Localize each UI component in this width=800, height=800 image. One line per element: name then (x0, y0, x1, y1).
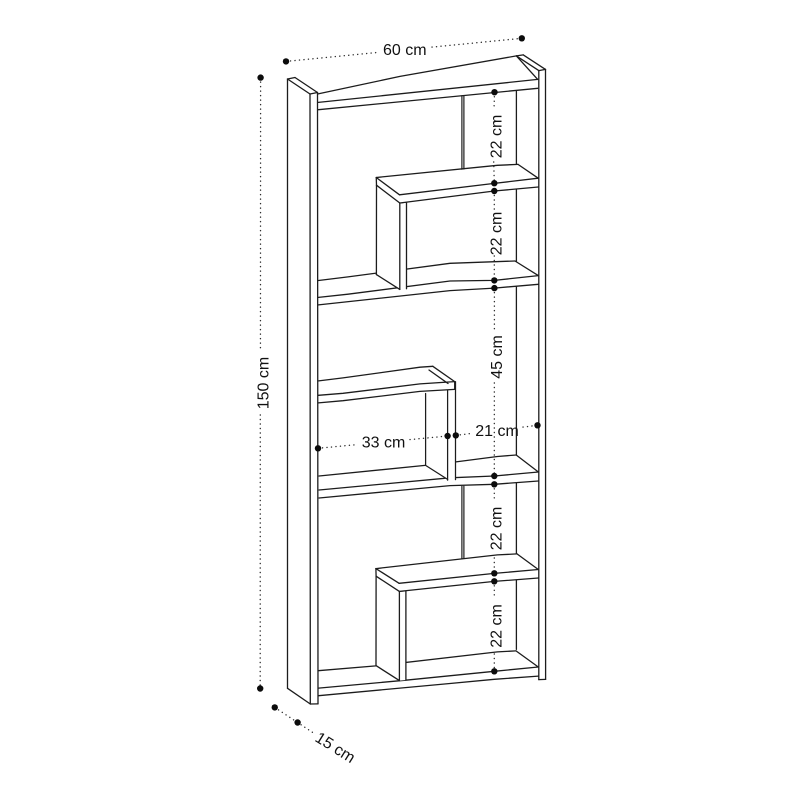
svg-text:60 cm: 60 cm (383, 42, 427, 59)
svg-text:22 cm: 22 cm (489, 115, 506, 159)
svg-text:21 cm: 21 cm (475, 423, 519, 440)
svg-text:150 cm: 150 cm (256, 357, 273, 409)
svg-text:22 cm: 22 cm (489, 604, 506, 648)
svg-text:22 cm: 22 cm (489, 507, 506, 551)
svg-text:45 cm: 45 cm (489, 335, 506, 379)
svg-text:33 cm: 33 cm (362, 435, 406, 452)
svg-text:22 cm: 22 cm (489, 212, 506, 256)
